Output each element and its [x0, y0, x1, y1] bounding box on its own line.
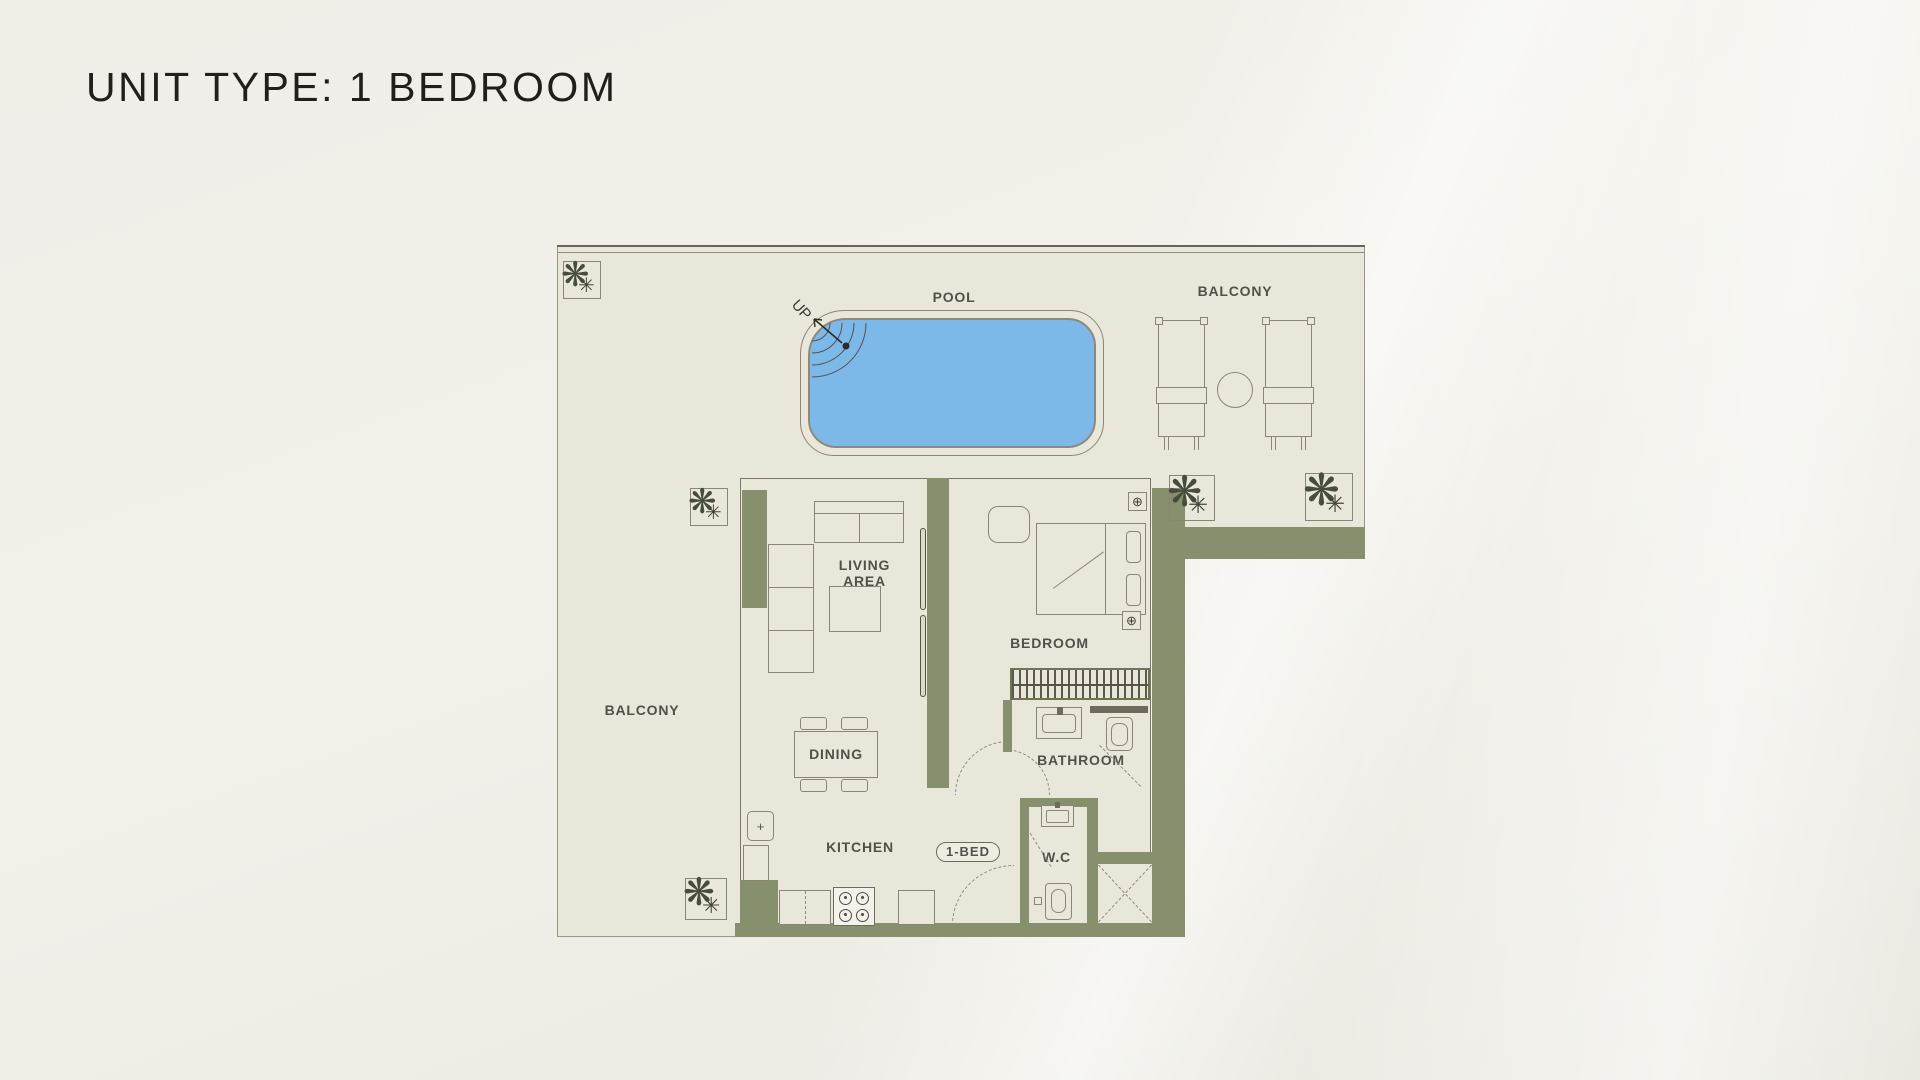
wall-wc-right — [1087, 798, 1098, 933]
fridge-plus-icon: + — [757, 819, 765, 834]
shaft — [1098, 864, 1152, 923]
lounge-chair-left — [1158, 320, 1205, 437]
round-table — [1217, 372, 1253, 408]
sliding-door-lower — [920, 615, 926, 697]
bathroom-sink — [1036, 707, 1082, 739]
plant-icon: ✳ — [1325, 493, 1345, 517]
dining-chair — [841, 717, 868, 730]
bed — [1036, 523, 1146, 615]
terrace-top-edge-line — [557, 245, 1365, 253]
wall-living-bedroom — [927, 478, 949, 788]
wall-left-living — [742, 490, 767, 608]
pool-label: POOL — [904, 289, 1004, 305]
plant-icon: ✳ — [705, 503, 722, 523]
stove-burner-icon — [856, 892, 869, 905]
wall-wc-left — [1020, 798, 1029, 923]
plant-top-left: ❋ ✳ — [563, 261, 601, 299]
wall-right-horizontal-band — [1185, 527, 1365, 559]
wall-right-vertical — [1152, 488, 1185, 933]
wardrobe — [1010, 668, 1150, 700]
kitchen-counter — [779, 890, 831, 925]
plant-icon: ✳ — [702, 895, 720, 917]
lounge-chair-right — [1265, 320, 1312, 437]
wall-bottom-band — [735, 923, 1185, 937]
page-title: UNIT TYPE: 1 BEDROOM — [86, 64, 617, 111]
fridge: + — [747, 811, 774, 841]
balcony-top-label: BALCONY — [1185, 283, 1285, 299]
wc-sink — [1041, 805, 1074, 827]
pool-steps-icon: UP — [782, 283, 912, 413]
stove-burner-icon — [839, 909, 852, 922]
living-area-label: LIVING AREA — [807, 557, 922, 589]
l-sofa — [768, 544, 814, 673]
faucet — [1055, 802, 1060, 808]
wall-kitchen-column — [740, 880, 778, 927]
balcony-left-label: BALCONY — [592, 702, 692, 718]
wall-light-icon: ⊕ — [1122, 611, 1141, 630]
plant-terrace-corner-right: ❋ ✳ — [1305, 473, 1353, 521]
blanket-fold — [1053, 552, 1104, 589]
coffee-table — [829, 586, 881, 632]
up-label: UP — [788, 297, 815, 324]
plant-icon: ✳ — [1188, 494, 1208, 518]
sofa — [814, 501, 904, 543]
armchair — [988, 506, 1030, 543]
kitchen-label: KITCHEN — [795, 839, 925, 855]
dining-chair — [841, 779, 868, 792]
faucet — [1057, 707, 1063, 715]
bedroom-label: BEDROOM — [997, 635, 1102, 651]
kitchen-counter-left — [743, 845, 769, 881]
wc-accessory — [1034, 897, 1042, 905]
plant-icon: ✳ — [578, 276, 595, 296]
stove-burner-icon — [856, 909, 869, 922]
plant-left-balcony-lower: ❋ ✳ — [685, 878, 727, 920]
floor-plan: UP POOL BALCONY ❋ ✳ ❋ ✳ ❋ ✳ ❋ ✳ ❋ ✳ BALC… — [557, 245, 1365, 937]
wall-shaft-top — [1098, 852, 1152, 864]
pillow — [1126, 574, 1141, 606]
bathroom-counter — [1090, 706, 1148, 713]
wall-light-icon: ⊕ — [1128, 492, 1147, 511]
sliding-door-upper — [920, 528, 926, 610]
stove-burner-icon — [839, 892, 852, 905]
dining-chair — [800, 779, 827, 792]
unit-badge: 1-BED — [936, 842, 1000, 862]
stove — [833, 887, 875, 926]
dining-label: DINING — [809, 746, 863, 762]
plant-terrace-corner-left: ❋ ✳ — [1169, 475, 1215, 521]
kitchen-counter — [898, 890, 935, 925]
wc-toilet — [1045, 883, 1072, 920]
dining-table: DINING — [794, 731, 878, 778]
bathroom-toilet — [1106, 717, 1133, 751]
dining-chair — [800, 717, 827, 730]
pillow — [1126, 531, 1141, 563]
plant-left-balcony-upper: ❋ ✳ — [690, 488, 728, 526]
